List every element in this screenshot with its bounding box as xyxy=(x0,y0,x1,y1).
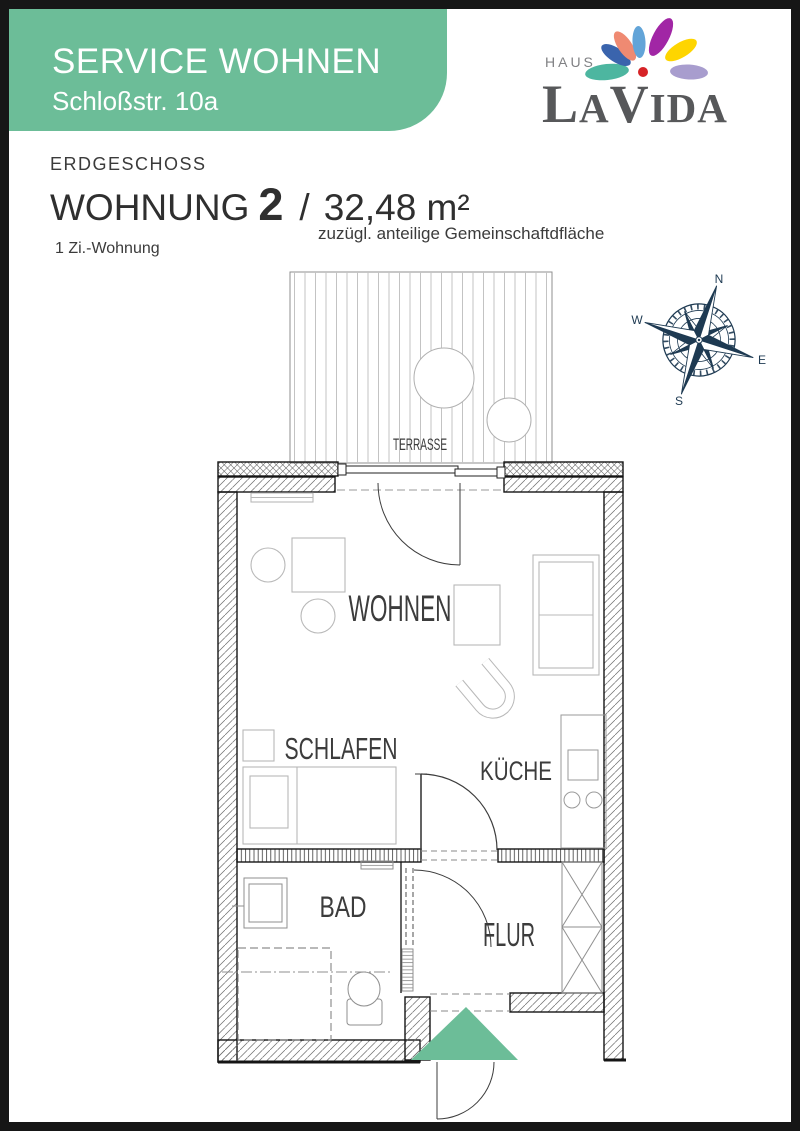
sink-basin xyxy=(564,792,580,808)
chair xyxy=(301,599,335,633)
shower xyxy=(238,948,331,1040)
kitchen-counter xyxy=(561,715,606,848)
brochure-page: TERRASSE xyxy=(0,0,800,1131)
compass-label-w: W xyxy=(631,313,643,327)
compass-label-n: N xyxy=(715,272,724,286)
bed xyxy=(243,767,396,844)
armchair xyxy=(459,661,517,720)
unit-label: WOHNUNG xyxy=(50,187,249,228)
compass-label-s: S xyxy=(675,394,683,408)
banner-subtitle: Schloßstr. 10a xyxy=(52,86,218,117)
compass-label-e: E xyxy=(758,353,766,367)
table xyxy=(292,538,345,592)
floor-label: ERDGESCHOSS xyxy=(50,154,207,175)
compass-rose-icon: N E S W xyxy=(627,268,771,412)
terrace-area: TERRASSE xyxy=(290,272,552,463)
furniture-bad xyxy=(222,861,393,1040)
door-arc-entrance xyxy=(437,1062,494,1119)
nightstand xyxy=(243,730,274,761)
chair xyxy=(251,548,285,582)
room-label-wohnen: WOHNEN xyxy=(349,588,452,629)
door-arc-terrace xyxy=(378,483,460,565)
room-label-flur: FLUR xyxy=(483,916,535,953)
terrace-table-small xyxy=(487,398,531,442)
logo-haus-text: HAUS xyxy=(545,54,596,70)
terrace-door xyxy=(338,464,346,475)
radiator xyxy=(402,949,413,991)
radiator xyxy=(361,861,393,869)
logo-letter: A xyxy=(579,85,610,131)
apartment-type: 1 Zi.-Wohnung xyxy=(55,240,160,258)
table xyxy=(454,585,500,645)
logo-letter: IDA xyxy=(650,85,728,131)
logo-letter: V xyxy=(610,74,650,134)
terrace-table-large xyxy=(414,348,474,408)
sink-basin xyxy=(586,792,602,808)
room-labels: WOHNEN SCHLAFEN KÜCHE BAD FLUR xyxy=(285,588,553,953)
unit-area: 32,48 m² xyxy=(324,187,470,228)
logo-name-text: LAVIDA xyxy=(542,73,728,135)
room-label-kueche: KÜCHE xyxy=(480,756,552,786)
room-label-terrasse: TERRASSE xyxy=(393,435,447,454)
area-note: zuzügl. anteilige Gemeinschaftdfläche xyxy=(318,224,604,244)
banner-title: SERVICE WOHNEN xyxy=(52,42,381,82)
furniture-kueche xyxy=(561,715,606,848)
room-label-bad: BAD xyxy=(320,891,367,924)
unit-separator: / xyxy=(299,187,309,228)
pillow xyxy=(250,776,288,828)
stove xyxy=(568,750,598,780)
unit-number: 2 xyxy=(258,179,283,230)
toilet-bowl xyxy=(348,972,380,1006)
door-arc-bath xyxy=(414,870,491,947)
washbasin xyxy=(244,878,287,928)
header-banner: SERVICE WOHNEN Schloßstr. 10a xyxy=(9,9,447,131)
room-label-schlafen: SCHLAFEN xyxy=(285,731,398,766)
logo-letter: L xyxy=(542,74,579,134)
